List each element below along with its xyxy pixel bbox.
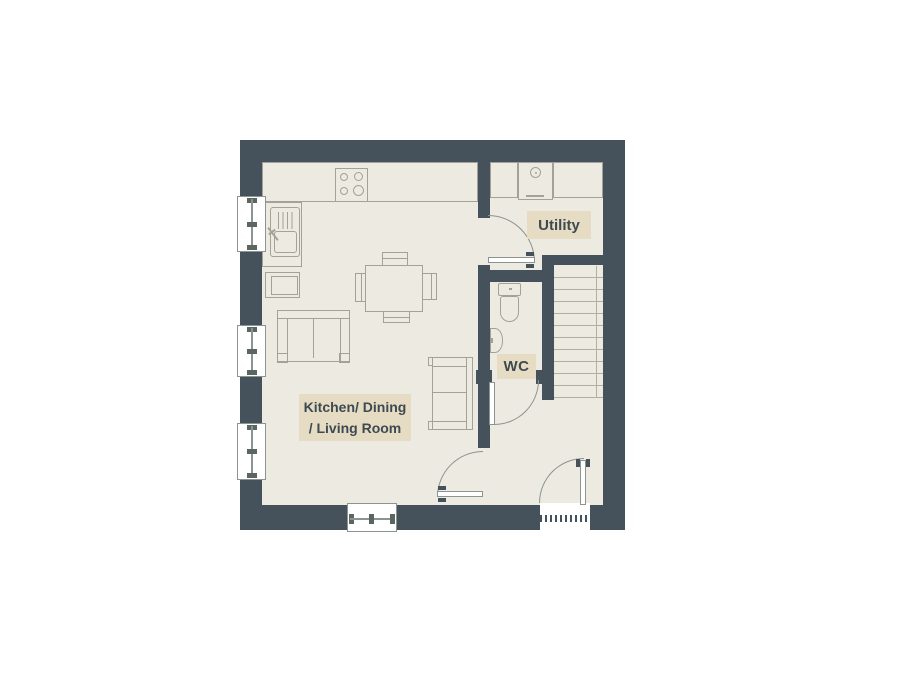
stair-top-wall (542, 255, 625, 265)
window-sash-block (247, 449, 257, 454)
stairs-bottom-edge (554, 397, 603, 398)
window-sash-block (247, 245, 257, 250)
label-wc-text: WC (504, 358, 530, 375)
utility-door-stop (526, 252, 534, 256)
basin-tap (490, 338, 493, 343)
label-utility: Utility (527, 211, 591, 239)
window-sash-block (247, 370, 257, 375)
dining-chair-west-back (361, 274, 362, 301)
washing-machine-dial-dot (535, 172, 537, 174)
label-kitchen-line2: / Living Room (309, 420, 402, 436)
utility-counter-right (553, 162, 603, 198)
label-wc: WC (497, 354, 536, 379)
wc-door-stop (484, 417, 488, 425)
loveseat-cushion-divider (433, 392, 466, 393)
hall-door-stop (438, 486, 446, 490)
dining-chair-east-back (431, 274, 432, 299)
utility-door-stop (526, 264, 534, 268)
sink-drainer (278, 212, 295, 229)
loveseat-arm-bottom (433, 421, 466, 422)
window-bottom (347, 503, 397, 532)
label-kitchen-dining-living: Kitchen/ Dining / Living Room (299, 394, 411, 441)
wc-utility-divider-wall (478, 270, 552, 282)
hall-door-leaf (437, 491, 483, 497)
loveseat-back (466, 358, 467, 429)
hob-burner (353, 185, 364, 196)
dining-chair-north-back (383, 258, 407, 259)
dining-table (365, 265, 423, 312)
label-utility-text: Utility (538, 217, 580, 234)
hall-wall-upper (478, 162, 490, 218)
window-left-3 (237, 423, 266, 480)
sofa-cushion-divider (313, 319, 314, 358)
sink-bowl (274, 231, 297, 253)
dining-chair-south-back (384, 317, 409, 318)
window-sash-block (247, 222, 257, 227)
window-left-1 (237, 196, 266, 252)
sofa-foot-left (277, 353, 288, 363)
front-door-threshold (540, 515, 590, 522)
kitchen-counter-top (262, 162, 478, 202)
hob-burner (354, 172, 363, 181)
kitchen-base-unit-door (271, 276, 298, 295)
loveseat-arm-top (433, 366, 466, 367)
stairs-stringer (596, 266, 597, 398)
hob-burner (340, 173, 348, 181)
label-kitchen-line1: Kitchen/ Dining (304, 399, 407, 415)
hob (335, 168, 368, 202)
floor-plan: Kitchen/ Dining / Living Room Utility WC (0, 0, 900, 675)
front-door-stop (576, 459, 580, 467)
toilet-bowl (500, 296, 519, 322)
sofa-foot-right (339, 353, 350, 363)
wc-door-leaf (489, 382, 495, 425)
utility-door-leaf (488, 257, 535, 263)
toilet-flush-button (509, 288, 512, 290)
front-door-stop (586, 459, 590, 467)
window-sash-block (390, 514, 395, 524)
window-sash-block (369, 514, 374, 524)
window-sash-block (247, 473, 257, 478)
hob-burner (340, 187, 348, 195)
utility-counter-left (490, 162, 518, 198)
window-left-2 (237, 325, 266, 377)
washing-machine-handle (526, 195, 544, 197)
hall-door-stop (438, 498, 446, 502)
window-sash-block (247, 349, 257, 354)
